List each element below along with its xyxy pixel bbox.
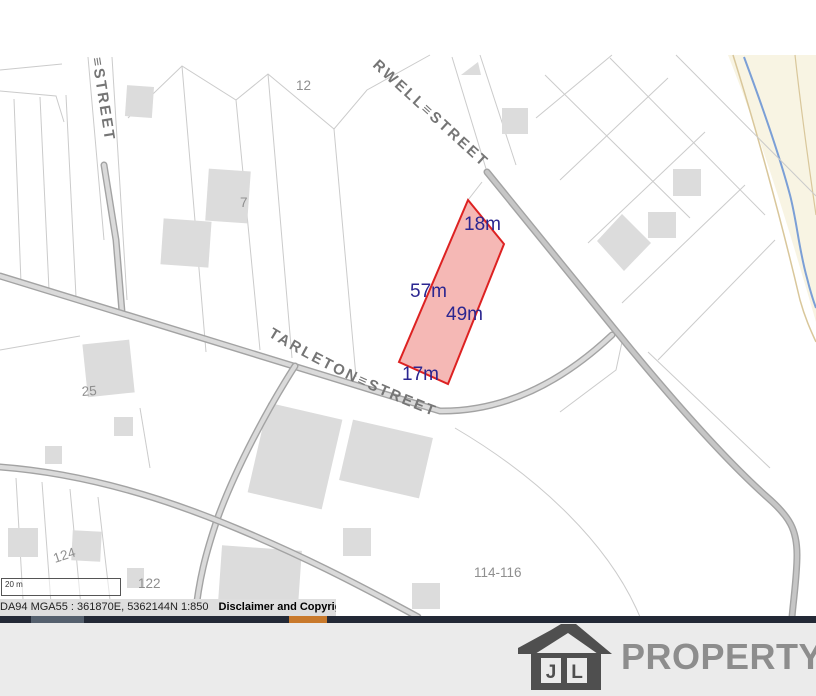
dimension-top: 18m <box>464 214 501 235</box>
coordinate-readout: DA94 MGA55 : 361870E, 5362144N 1:850 <box>0 601 209 613</box>
street-label-left: ≡STREET <box>88 56 118 143</box>
bar-segment-orange <box>289 616 327 623</box>
jl-property-logo: J L <box>518 624 618 692</box>
lot-number-114-116: 114-116 <box>474 565 522 580</box>
dimension-bottom: 17m <box>402 364 439 385</box>
map-canvas[interactable]: 18m 57m 49m 17m ≡STREET RWELL≡STREET TAR… <box>0 0 816 617</box>
scale-bar: 20 m <box>1 578 121 596</box>
dimension-right: 49m <box>446 304 483 325</box>
house-roof-icon <box>518 624 612 654</box>
disclaimer-link[interactable]: Disclaimer and Copyright Notice <box>219 601 336 613</box>
parcel-boundaries <box>0 55 816 617</box>
status-bar: DA94 MGA55 : 361870E, 5362144N 1:850Disc… <box>0 599 336 616</box>
footer-branding: J L PROPERTY <box>0 623 816 696</box>
lot-number-25: 25 <box>81 383 97 399</box>
scale-bar-label: 20 m <box>5 580 23 589</box>
bar-segment-gray <box>31 616 84 623</box>
dimension-left: 57m <box>410 281 447 302</box>
lot-number-122: 122 <box>138 576 161 591</box>
lot-number-7: 7 <box>240 195 248 210</box>
lot-number-12: 12 <box>296 78 311 93</box>
logo-letter-l: L <box>571 662 583 683</box>
logo-letter-j: J <box>546 662 557 683</box>
brand-name: PROPERTY <box>621 636 816 678</box>
cadastral-map[interactable]: 18m 57m 49m 17m ≡STREET RWELL≡STREET TAR… <box>0 0 816 617</box>
bottom-divider-bar <box>0 616 816 623</box>
building-footprints <box>8 62 701 609</box>
